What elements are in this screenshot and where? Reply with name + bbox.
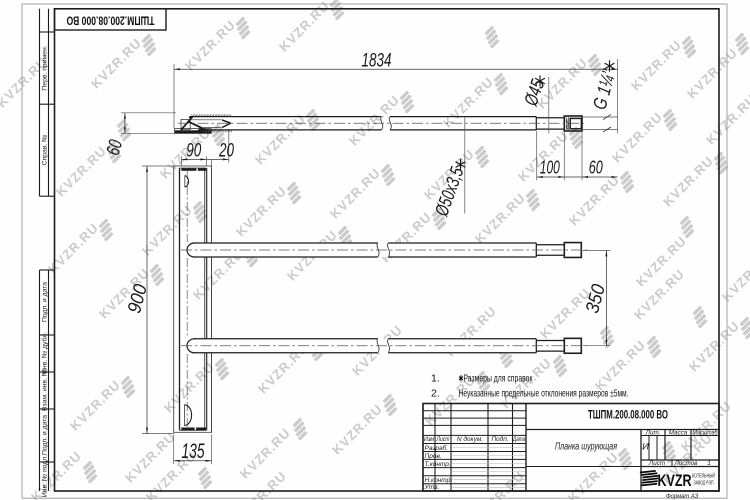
svg-text:Масштаб: Масштаб [693, 428, 718, 436]
svg-text:Неуказанные предельные отклоне: Неуказанные предельные отклонения размер… [459, 388, 629, 400]
svg-text:1.: 1. [431, 373, 440, 385]
svg-text:Пров.: Пров. [425, 453, 442, 460]
svg-text:Лит.: Лит. [645, 429, 661, 436]
svg-text:Инв. № подл.: Инв. № подл. [41, 455, 48, 497]
svg-text:Формат А3: Формат А3 [666, 493, 698, 500]
svg-text:20: 20 [218, 141, 234, 162]
svg-text:Лист: Лист [436, 436, 450, 443]
svg-text:И: И [642, 442, 649, 453]
svg-text:Подп. и дата: Подп. и дата [41, 282, 48, 322]
svg-text:Подп.: Подп. [491, 435, 508, 443]
svg-text:KVZR: KVZR [658, 472, 692, 490]
svg-text:Инв. № дубл.: Инв. № дубл. [40, 332, 48, 374]
svg-text:✱Размеры для справок: ✱Размеры для справок [459, 373, 533, 385]
svg-text:Разраб.: Разраб. [425, 444, 449, 452]
svg-text:Т.контр.: Т.контр. [425, 461, 451, 468]
svg-text:Лист: Лист [648, 460, 665, 467]
svg-text:Н.контр.: Н.контр. [425, 477, 453, 484]
svg-text:ТШПМ.200.08.000 ВО: ТШПМ.200.08.000 ВО [67, 13, 155, 27]
svg-text:Масса: Масса [669, 429, 688, 436]
svg-text:1834: 1834 [362, 51, 392, 72]
svg-text:Перв. примен.: Перв. примен. [41, 45, 48, 90]
svg-text:КОТЕЛЬНЫЙ: КОТЕЛЬНЫЙ [692, 472, 715, 480]
svg-text:2.: 2. [431, 388, 440, 400]
svg-text:Взам. инв. №: Взам. инв. № [41, 369, 48, 411]
svg-text:ЗАВОД РЭП: ЗАВОД РЭП [694, 481, 714, 487]
svg-text:ТШПМ.200.08.000 ВО: ТШПМ.200.08.000 ВО [588, 408, 668, 422]
svg-text:135: 135 [182, 440, 205, 463]
svg-text:Дата: Дата [512, 436, 525, 443]
svg-text:1: 1 [707, 460, 711, 467]
svg-text:Утв.: Утв. [424, 484, 440, 491]
svg-text:Листов: Листов [674, 460, 699, 467]
svg-text:Справ. №: Справ. № [41, 135, 48, 166]
svg-text:100: 100 [540, 157, 560, 177]
svg-text:Подп. и дата: Подп. и дата [41, 415, 48, 455]
svg-text:60: 60 [589, 157, 603, 177]
svg-text:Планка шурующая: Планка шурующая [555, 441, 617, 453]
svg-text:N докум.: N докум. [457, 435, 483, 443]
svg-text:Изм: Изм [424, 436, 435, 443]
svg-text:90: 90 [186, 141, 201, 162]
